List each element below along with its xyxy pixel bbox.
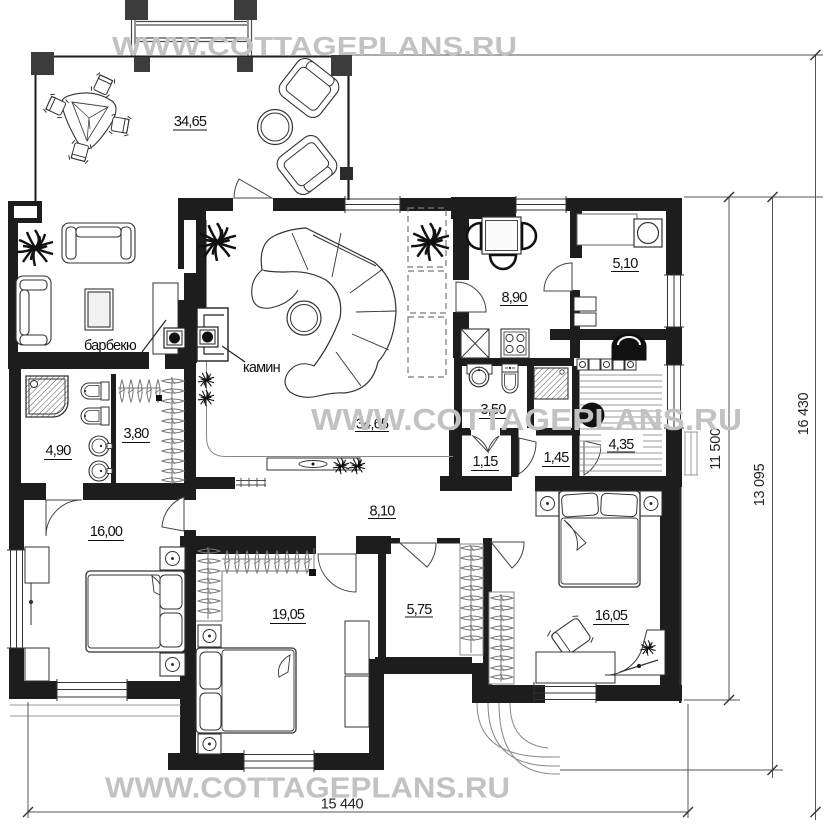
svg-text:5,75: 5,75 [406, 602, 432, 618]
svg-text:16,05: 16,05 [595, 608, 628, 624]
svg-text:1,45: 1,45 [543, 450, 569, 466]
svg-text:барбекю: барбекю [84, 338, 137, 354]
svg-text:4,90: 4,90 [45, 443, 71, 459]
svg-text:WWW.COTTAGEPLANS.RU: WWW.COTTAGEPLANS.RU [105, 773, 510, 805]
svg-text:WWW.COTTAGEPLANS.RU: WWW.COTTAGEPLANS.RU [112, 31, 517, 61]
svg-text:5,10: 5,10 [612, 256, 638, 272]
svg-text:34,65: 34,65 [174, 114, 207, 130]
svg-text:4,35: 4,35 [608, 437, 634, 453]
svg-text:8,10: 8,10 [369, 504, 395, 520]
svg-text:3,80: 3,80 [123, 426, 149, 442]
svg-text:8,90: 8,90 [501, 290, 527, 306]
svg-text:16,00: 16,00 [90, 524, 123, 540]
svg-text:16 430: 16 430 [796, 392, 812, 435]
svg-text:13 095: 13 095 [752, 463, 768, 506]
svg-text:1,15: 1,15 [472, 454, 498, 470]
svg-text:WWW.COTTAGEPLANS.RU: WWW.COTTAGEPLANS.RU [311, 403, 742, 437]
svg-text:19,05: 19,05 [272, 607, 305, 623]
svg-text:камин: камин [243, 360, 280, 376]
